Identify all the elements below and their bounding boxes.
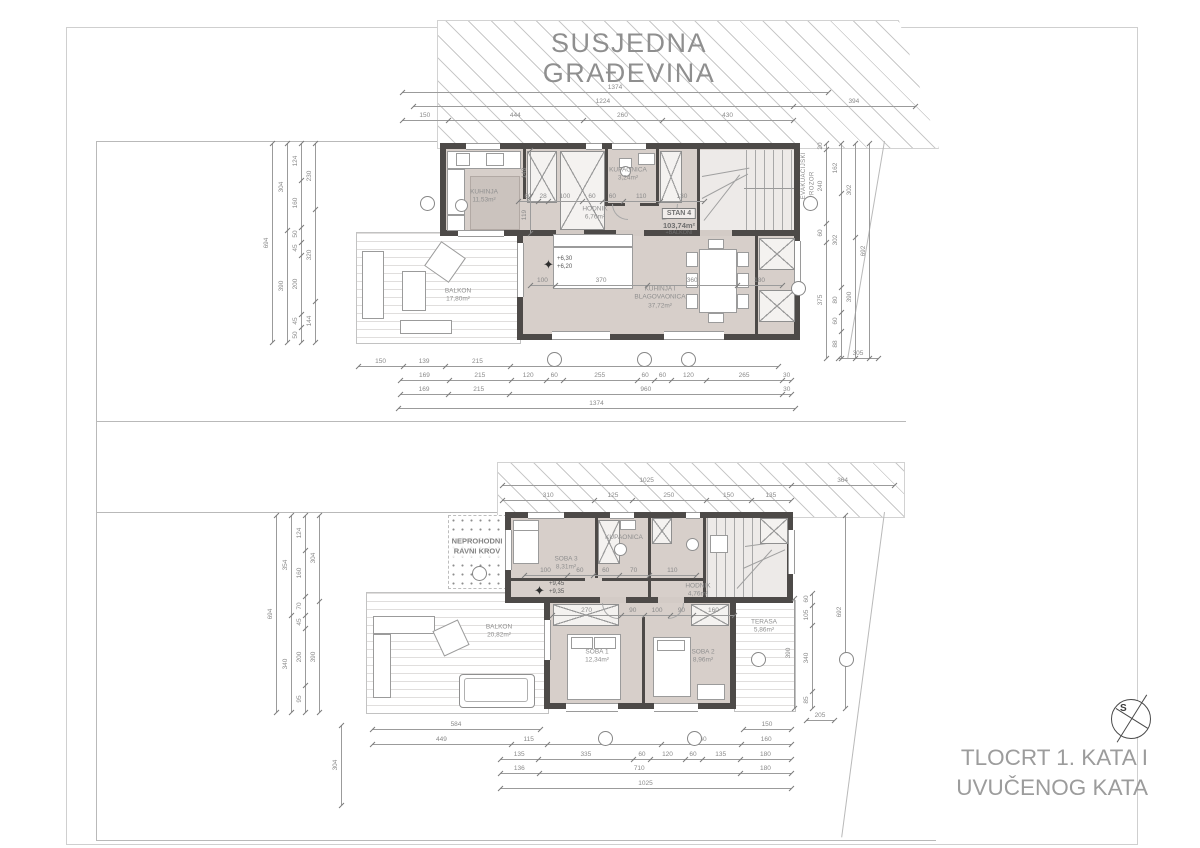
dim-label: 162 [832,163,839,174]
dim-label: 215 [473,386,484,393]
dim-label: 335 [580,751,591,758]
dim-label: 1025 [639,477,653,484]
dim-label: 110 [667,567,677,574]
roof-label: NEPROHODNI RAVNI KROV [450,535,505,557]
dim-label: 50 [292,231,299,238]
dim-label: 302 [846,184,853,195]
dim-label: 370 [596,277,607,284]
dim-label: 45 [292,245,299,252]
dim-label: 160 [761,736,772,743]
dim-label: 270 [581,607,592,614]
dim-line [530,150,531,233]
dim-line [372,744,791,745]
dim-label: 60 [659,372,666,379]
compass-letter: S [1120,703,1127,714]
unit-name: STAN 4 [662,208,696,219]
dim-label: 60 [832,318,839,325]
dim-line [743,729,791,730]
dim-line [502,500,791,501]
room-label: KUPAONICA 3,24m² [609,167,647,184]
window-tag-circle [547,352,562,367]
dim-label: 260 [617,112,628,119]
dim-label: 255 [594,372,605,379]
dim-label: 305 [853,350,864,357]
dim-label: 390 [310,651,317,662]
dim-label: 144 [306,316,313,327]
dim-label: 70 [630,567,637,574]
dim-label: 694 [263,237,270,248]
marker-layer [0,0,1200,848]
dim-line [400,380,791,381]
dim-label: 1025 [638,780,652,787]
dim-label: 1224 [596,98,610,105]
elevation-star-icon: ✦ [543,258,554,271]
dim-label: 139 [419,358,430,365]
dim-label: 710 [634,765,645,772]
dim-label: 364 [837,477,848,484]
dim-label: 60 [642,372,649,379]
dim-label: 95 [296,695,303,702]
dim-line [413,106,915,107]
dim-label: 390 [785,648,792,659]
room-label: BALKON 20,82m² [486,624,512,641]
dim-label: 205 [815,712,826,719]
dim-label: 60 [638,751,645,758]
dim-label: 136 [514,765,525,772]
dim-line [500,773,791,774]
dim-label: 304 [332,760,339,771]
title-line1: TLOCRT 1. KATA I [930,743,1148,773]
window-tag-circle [681,352,696,367]
dim-label: 125 [608,492,619,499]
room-label: BALKON 17,80m² [445,288,471,305]
dim-label: 45 [292,317,299,324]
dim-line [400,394,791,395]
elevation-star-icon: ✦ [534,584,545,597]
dim-line [500,788,791,789]
window-tag-circle [803,196,818,211]
dim-label: 215 [472,358,483,365]
dim-label: 60 [609,193,616,200]
dim-label: 1374 [608,84,622,91]
dim-label: 150 [762,721,773,728]
dim-label: 60 [803,595,810,602]
dim-line [869,143,870,358]
dim-label: 304 [278,181,285,192]
dim-label: 90 [678,607,685,614]
dim-label: 105 [803,609,810,620]
drawing-sheet: SUSJEDNA GRAĐEVINA [0,0,1200,848]
room-label: KUPAONICA [605,534,643,542]
window-tag-circle [637,352,652,367]
dim-label: 694 [267,608,274,619]
window-tag-circle [598,731,613,746]
dim-label: 200 [292,279,299,290]
dim-label: 20 [817,142,824,149]
dim-line [398,408,795,409]
dim-line [838,358,878,359]
dim-line [319,515,320,712]
dim-label: 310 [543,492,554,499]
dim-line [276,515,277,712]
dim-line [402,120,793,121]
dim-label: 100 [652,607,663,614]
dim-label: 390 [846,292,853,303]
dim-label: 90 [629,607,636,614]
neighbor-line2: GRAĐEVINA [498,58,760,88]
dim-label: 230 [306,171,313,182]
dim-line [341,725,342,805]
dim-label: 120 [523,372,534,379]
dim-label: 394 [848,98,859,105]
dim-label: 120 [662,751,673,758]
window-tag-circle [472,566,487,581]
dim-label: 692 [860,245,867,256]
dim-label: 430 [722,112,733,119]
dim-label: 135 [715,751,726,758]
elevation-values: +6,30 +6,20 [557,256,572,271]
dim-label: 200 [296,651,303,662]
dim-label: 115 [524,736,534,743]
dim-label: 240 [817,181,824,192]
dim-label: 50 [292,331,299,338]
dim-label: 100 [540,567,551,574]
dim-label: 692 [836,606,843,617]
dim-label: 340 [803,653,810,664]
room-label: HODNIK 4,76m² [685,583,710,600]
dim-label: 160 [292,198,299,209]
neighbor-building-label: SUSJEDNA GRAĐEVINA [498,28,760,88]
dim-label: 150 [723,492,734,499]
dim-label: 124 [296,527,303,538]
dim-label: 160 [708,607,719,614]
dim-label: 135 [514,751,525,758]
window-tag-circle [687,731,702,746]
room-label: SOBA 2 8,96m² [691,649,714,666]
unit-label: STAN 4103,74m²+BALKONI [662,202,696,236]
dim-label: 124 [292,156,299,167]
room-label: SOBA 1 12,34m² [585,649,609,666]
dim-label: 130 [677,193,688,200]
orientation-symbol: S [1111,699,1151,739]
dim-line [502,485,894,486]
room-label: SOBA 3 8,31m² [554,556,577,573]
dim-label: 160 [296,567,303,578]
window-tag-circle [839,652,854,667]
dim-line [287,143,288,342]
dim-label: 60 [551,372,558,379]
dim-label: 354 [282,560,289,571]
dim-label: 444 [510,112,521,119]
dim-label: 180 [760,765,771,772]
dim-label: 320 [306,249,313,260]
dim-label: 119 [521,209,528,219]
dim-label: 215 [474,372,485,379]
neighbor-line1: SUSJEDNA [498,28,760,58]
dim-line [841,143,842,358]
dim-label: 265 [739,372,750,379]
dim-label: 45 [296,618,303,625]
dim-label: 80 [832,296,839,303]
dim-label: 110 [636,193,646,200]
unit-area-note: +BALKONI [662,230,696,236]
dim-label: 148 [521,168,528,179]
dim-label: 60 [817,229,824,236]
window-tag-circle [420,196,435,211]
window-tag-circle [791,281,806,296]
dim-label: 70 [296,602,303,609]
dim-label: 85 [803,696,810,703]
dim-line [500,759,791,760]
room-label: HODNIK 6,76m² [582,206,607,223]
dim-label: 100 [537,277,548,284]
dim-label: 150 [375,358,386,365]
dim-line [794,598,795,708]
dim-label: 60 [588,193,595,200]
dim-line [845,515,846,708]
dim-label: 584 [451,721,462,728]
room-label: TERASA 5,86m² [751,619,777,636]
unit-area: 103,74m² [662,221,696,230]
dim-label: 88 [832,341,839,348]
dim-line [272,143,273,342]
dim-label: 180 [754,277,765,284]
dim-label: 302 [832,235,839,246]
dim-label: 169 [419,372,430,379]
dim-label: 169 [419,386,430,393]
dim-label: 120 [683,372,694,379]
dim-label: 60 [602,567,609,574]
dim-label: 1374 [589,400,603,407]
dim-label: 135 [765,492,776,499]
window-tag-circle [751,652,766,667]
dim-label: 960 [640,386,651,393]
dim-label: 360 [687,277,698,284]
dim-label: 180 [760,751,771,758]
room-label: KUHINJA I BLAGOVAONICA 37,72m² [634,285,685,310]
dim-line [358,366,778,367]
drawing-title: TLOCRT 1. KATA I UVUČENOG KATA [930,743,1148,803]
dim-line [524,575,696,576]
dim-label: 60 [689,751,696,758]
elevation-values: +9,45 +9,35 [549,581,564,596]
room-label: KUHINJA 11,53m² [470,189,498,206]
dim-line [315,143,316,342]
dim-line [372,729,540,730]
evacuation-window-note: EVAKUACIJSKI PROZOR [800,152,817,199]
dim-label: 150 [419,112,430,119]
dim-line [855,143,856,358]
dim-label: 100 [559,193,570,200]
dim-label: 375 [817,295,824,306]
title-line2: UVUČENOG KATA [930,773,1148,803]
dim-label: 390 [278,281,285,292]
dim-line [806,720,834,721]
dim-label: 340 [282,658,289,669]
dim-line [402,92,828,93]
dim-label: 304 [310,553,317,564]
dim-line [826,143,827,358]
dim-label: 250 [663,492,674,499]
dim-label: 449 [436,736,447,743]
